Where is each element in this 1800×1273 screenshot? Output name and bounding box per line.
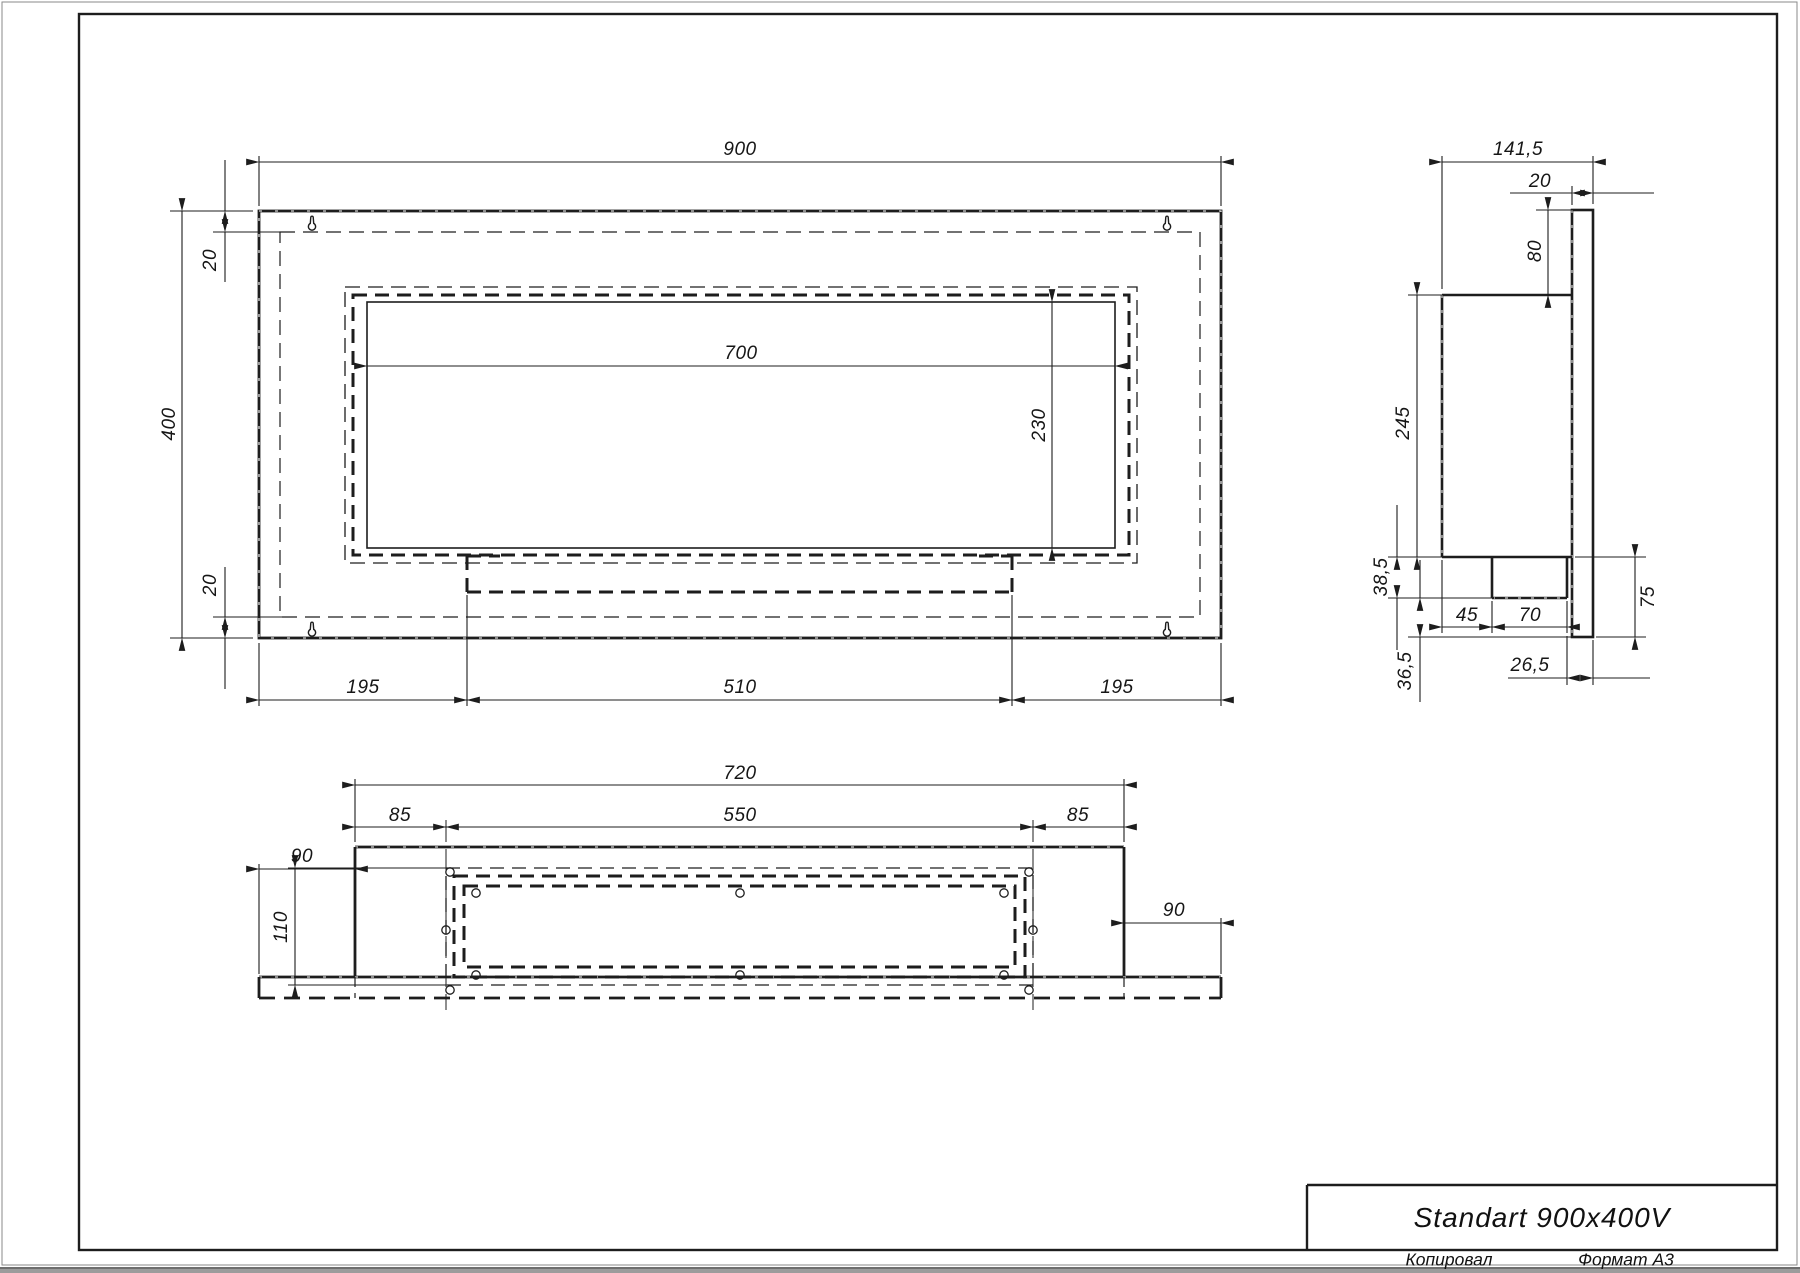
dim-front-height: 400 xyxy=(159,407,181,440)
dim-front-inset-top: 20 xyxy=(200,249,222,271)
dim-opening-height: 230 xyxy=(1029,408,1051,441)
dim-side-tray-gap: 26,5 xyxy=(1511,655,1550,677)
paper-sheet: 900 400 20 20 700 230 195 510 195 141,5 … xyxy=(0,0,1800,1269)
dim-bottom-flange-left: 90 xyxy=(291,846,313,868)
dim-side-tray-width: 70 xyxy=(1519,605,1541,627)
dim-side-panel-thickness: 20 xyxy=(1529,171,1551,193)
burner-tray-hidden xyxy=(467,556,1012,592)
dim-front-width: 900 xyxy=(723,139,756,161)
dim-side-panel-drop: 75 xyxy=(1638,586,1660,608)
footer-format-label: Формат А3 xyxy=(1578,1250,1674,1271)
front-view xyxy=(170,156,1221,706)
dim-bottom-frame-width: 550 xyxy=(723,805,756,827)
drawing-sheet: { "colors": { "line": "#1d1d1d", "paper"… xyxy=(0,0,1800,1273)
dim-side-depth: 141,5 xyxy=(1493,139,1543,161)
dim-side-body-height: 245 xyxy=(1393,406,1415,439)
dim-opening-width: 700 xyxy=(724,343,757,365)
dim-side-tray-offset: 45 xyxy=(1456,605,1478,627)
dim-bottom-margin-right: 85 xyxy=(1067,805,1089,827)
title-block-product-name: Standart 900x400V xyxy=(1414,1202,1671,1234)
page-frame xyxy=(2,2,1797,1265)
dim-bottom-flange-right: 90 xyxy=(1163,900,1185,922)
dim-side-tray-height: 38,5 xyxy=(1371,558,1393,597)
dim-bottom-frame-depth: 110 xyxy=(271,911,293,943)
dim-front-right-margin: 195 xyxy=(1100,677,1133,699)
dim-side-drop-gap: 36,5 xyxy=(1395,652,1417,691)
footer-copied-label: Копировал xyxy=(1405,1250,1492,1271)
dim-front-burner-width: 510 xyxy=(723,677,756,699)
dim-front-left-margin: 195 xyxy=(346,677,379,699)
dim-side-top-offset: 80 xyxy=(1525,240,1547,262)
dim-bottom-margin-left: 85 xyxy=(389,805,411,827)
dim-front-inset-bottom: 20 xyxy=(200,574,222,596)
dim-bottom-width: 720 xyxy=(723,763,756,785)
